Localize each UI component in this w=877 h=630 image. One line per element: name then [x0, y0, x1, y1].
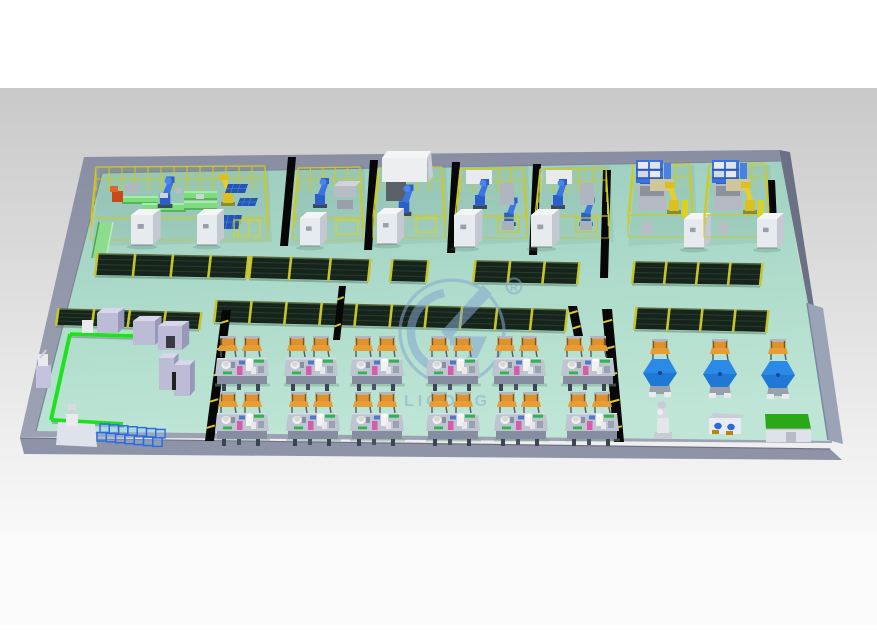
- svg-text:LIGONG: LIGONG: [404, 393, 491, 410]
- svg-text:R: R: [510, 282, 518, 294]
